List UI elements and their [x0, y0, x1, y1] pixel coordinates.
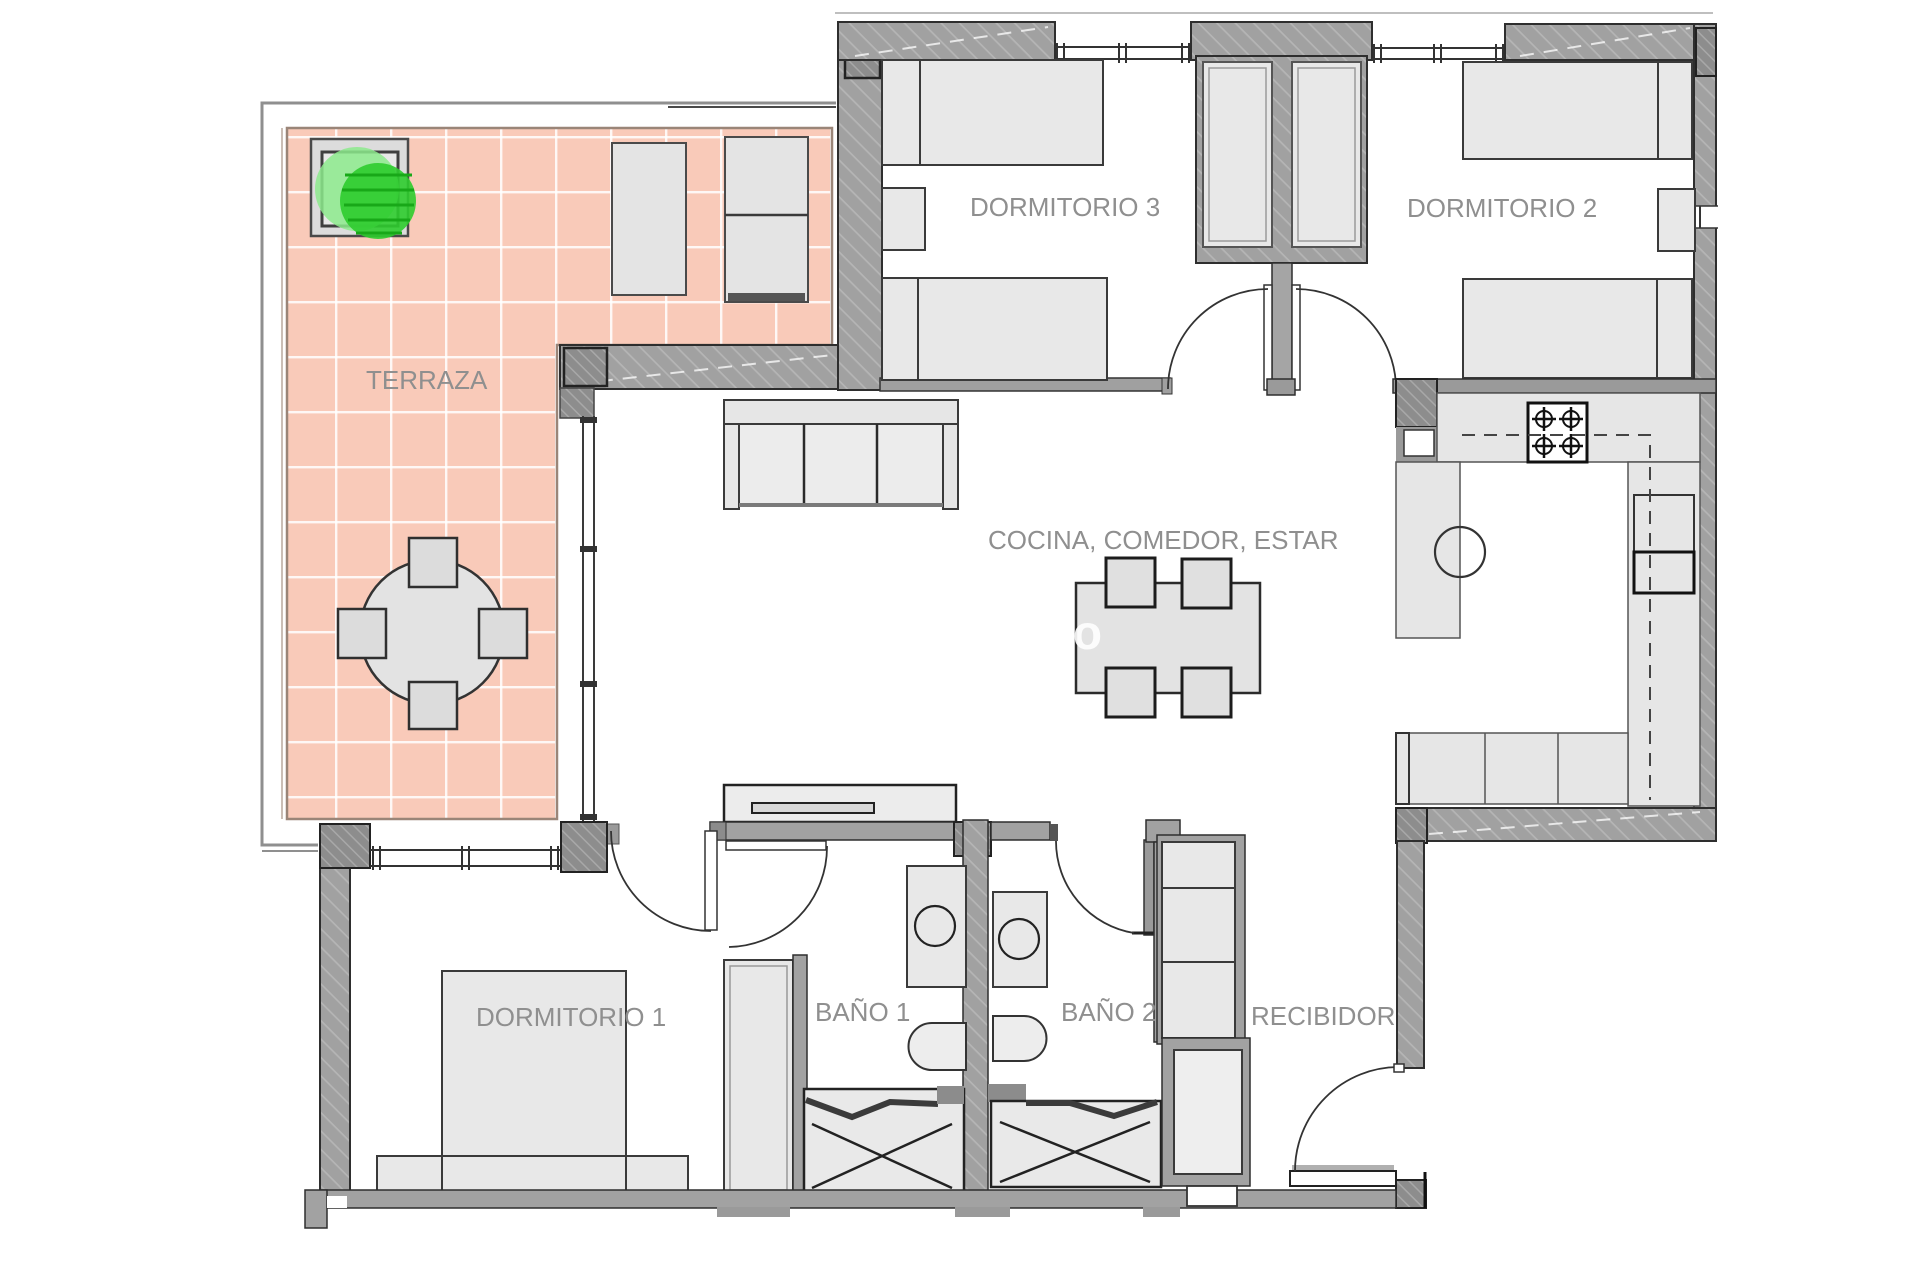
svg-text:co: co	[1046, 607, 1102, 660]
svg-text:DORMITORIO 2: DORMITORIO 2	[1407, 193, 1597, 223]
svg-text:TERRAZA: TERRAZA	[366, 365, 488, 395]
svg-text:DORMITORIO 1: DORMITORIO 1	[476, 1002, 666, 1032]
svg-text:RECIBIDOR: RECIBIDOR	[1251, 1001, 1395, 1031]
svg-text:BAÑO 1: BAÑO 1	[815, 997, 910, 1027]
svg-text:BAÑO 2: BAÑO 2	[1061, 997, 1156, 1027]
svg-text:DORMITORIO 3: DORMITORIO 3	[970, 192, 1160, 222]
svg-text:COCINA, COMEDOR, ESTAR: COCINA, COMEDOR, ESTAR	[988, 525, 1339, 555]
